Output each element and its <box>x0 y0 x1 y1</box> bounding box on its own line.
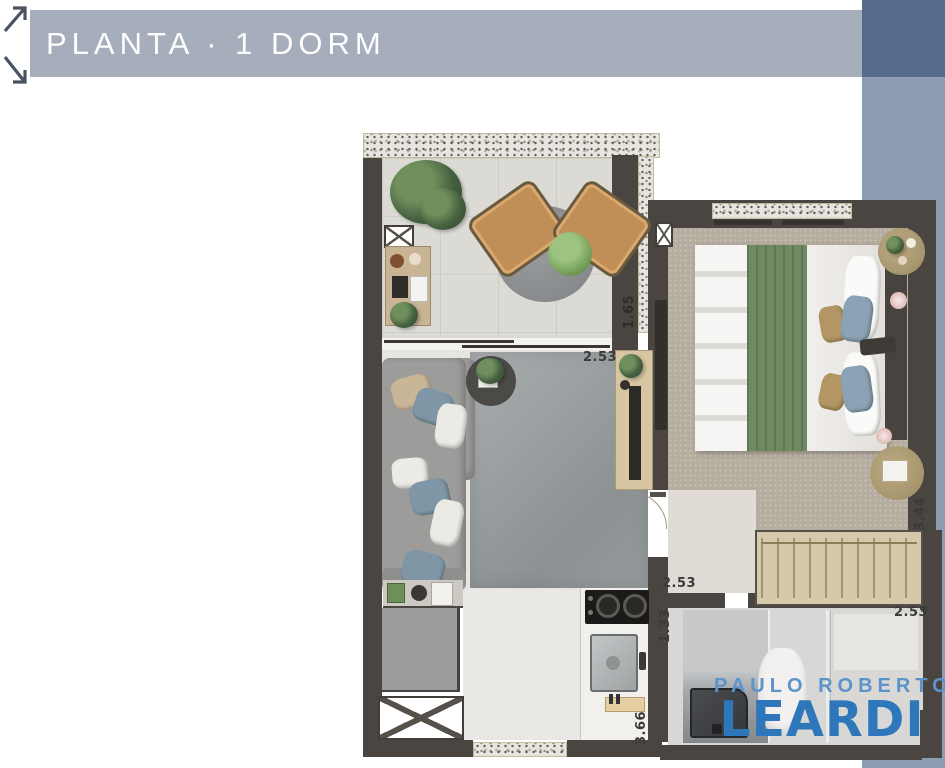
side-table-plate <box>409 253 421 265</box>
kitchen-faucet <box>639 652 646 670</box>
side-table-pot <box>390 254 404 268</box>
header-bar: PLANTA · 1 DORM <box>30 10 862 77</box>
sliding-door-rail-2 <box>462 345 610 348</box>
wall-bottom-left <box>363 740 473 757</box>
kitchen-appliance <box>431 582 453 606</box>
kitchen-fridge <box>382 608 460 692</box>
bedroom-door-leaf <box>650 492 666 497</box>
sidebar-dark-block <box>862 0 945 77</box>
dim-kitchen: 3.66 <box>634 705 649 745</box>
cutting-board-knife-2 <box>616 694 620 704</box>
balcony-duct-symbol <box>384 225 414 248</box>
page-title: PLANTA · 1 DORM <box>46 26 386 62</box>
dim-hallway: 2.53 <box>662 576 696 591</box>
tv-console-plant <box>619 354 643 378</box>
side-table-tablet <box>392 276 408 298</box>
bedroom-tv-panel <box>655 300 667 430</box>
bedroom-window-frame-right <box>782 220 844 225</box>
dim-bedroom-right: 3.44 <box>913 491 928 531</box>
dim-living-top: 2.53 <box>583 350 617 365</box>
kitchen-floor <box>463 590 580 740</box>
cutting-board-knife-1 <box>609 694 613 704</box>
sliding-door-rail-1 <box>384 340 514 343</box>
vanity-counter <box>834 614 918 670</box>
wall-left-outer <box>363 158 382 757</box>
floor-plan: 2.53 1.65 3.44 2.53 1.33 3.66 2.53 <box>362 128 940 760</box>
dim-bathroom-entry: 1.33 <box>658 607 673 643</box>
cooktop-knob-2 <box>588 610 593 615</box>
bedroom-window-sill <box>712 203 852 219</box>
side-table-book <box>410 276 428 302</box>
bed-foot-folds <box>695 245 747 451</box>
wardrobe-rod <box>761 542 917 544</box>
side-table-plant <box>390 302 418 328</box>
entry-threshold <box>473 742 567 757</box>
bedroom-lamp-bottom <box>876 428 892 444</box>
wardrobe-hangers <box>761 538 917 598</box>
bedroom-duct-symbol <box>655 222 673 247</box>
dim-balcony-right: 1.65 <box>622 291 637 329</box>
expand-arrows-icon <box>0 0 30 93</box>
kitchen-herb-box <box>387 583 405 603</box>
shaft-symbol <box>378 696 464 740</box>
nightstand-bottom-tray <box>882 460 908 482</box>
cooktop-burner-1 <box>596 594 620 618</box>
cooktop-burner-2 <box>623 594 647 618</box>
nightstand-top-cup-2 <box>898 256 907 265</box>
expand-arrows-icon-svg <box>0 0 30 93</box>
living-side-table-plant <box>476 358 504 384</box>
nightstand-top-cup <box>906 238 916 248</box>
logo-text-main: LEARDI <box>710 691 934 748</box>
tv-screen <box>629 386 641 480</box>
nightstand-top-plant <box>886 236 904 254</box>
nightstand-top <box>878 228 925 275</box>
dim-bathroom: 2.53 <box>894 605 928 620</box>
cooktop-knob-1 <box>588 596 593 601</box>
balcony-table-plant <box>548 232 592 276</box>
bedroom-window-frame-left <box>714 220 772 225</box>
wall-bathroom-top-left <box>668 593 725 608</box>
balcony-plant-large-2 <box>420 188 466 230</box>
kitchen-coffee-maker <box>411 585 427 601</box>
kitchen-sink-drain <box>606 656 620 670</box>
bedroom-lamp-top <box>890 292 907 309</box>
bed-green-throw <box>747 245 807 451</box>
